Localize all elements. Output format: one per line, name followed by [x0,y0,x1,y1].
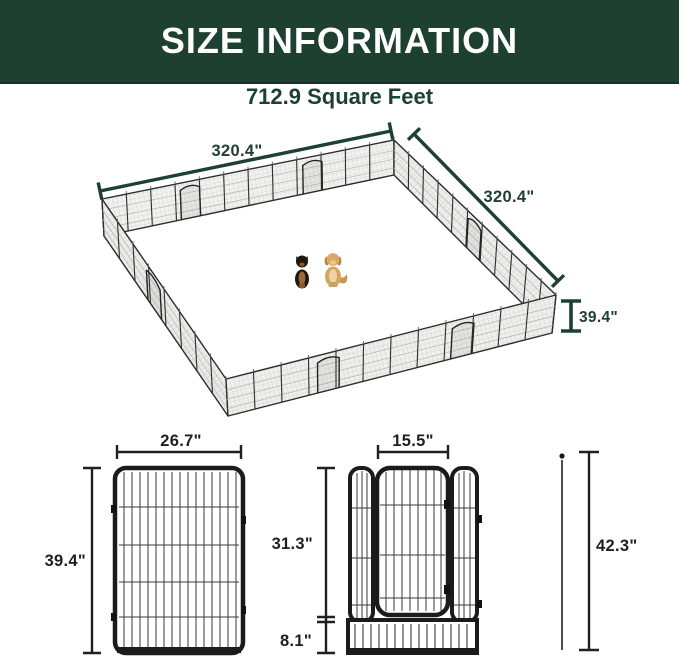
connector-tab [111,505,116,513]
connector-tab [477,600,482,608]
door-hinge [444,500,450,509]
door-hinge [444,585,450,594]
pen-height-dimension: 39.4" [561,301,618,331]
pen-height-label: 39.4" [579,309,618,326]
fence-door [180,185,200,219]
door-panel-diagram: 15.5" 31.3" 8.1" [272,432,638,653]
door-panel-drawing [348,468,482,653]
door-height-dimension [317,468,335,653]
bottom-height-label: 8.1" [280,632,312,650]
fence-door [451,322,474,359]
connector-tab [477,515,482,523]
panel-height-label: 39.4" [45,552,86,570]
door-width-label: 15.5" [392,432,433,450]
ground-stake-drawing [559,453,564,650]
panel-diagram: 26.7" 39.4" [45,432,246,653]
pen-width-right-label: 320.4" [484,188,535,206]
size-information-infographic: SIZE INFORMATION 712.9 Square Feet [0,0,679,656]
connector-tab [111,613,116,621]
fence-door [303,160,323,194]
pen-width-left-label: 320.4" [212,142,263,160]
diagram-canvas: 320.4" 320.4" 39.4" 26.7" [0,0,679,656]
door-height-label: 31.3" [272,535,313,553]
panel-drawing [111,468,246,653]
panel-width-label: 26.7" [160,432,201,450]
stake-length-label: 42.3" [596,537,637,555]
connector-tab [241,606,246,614]
connector-tab [241,516,246,524]
fence-door [317,357,339,393]
